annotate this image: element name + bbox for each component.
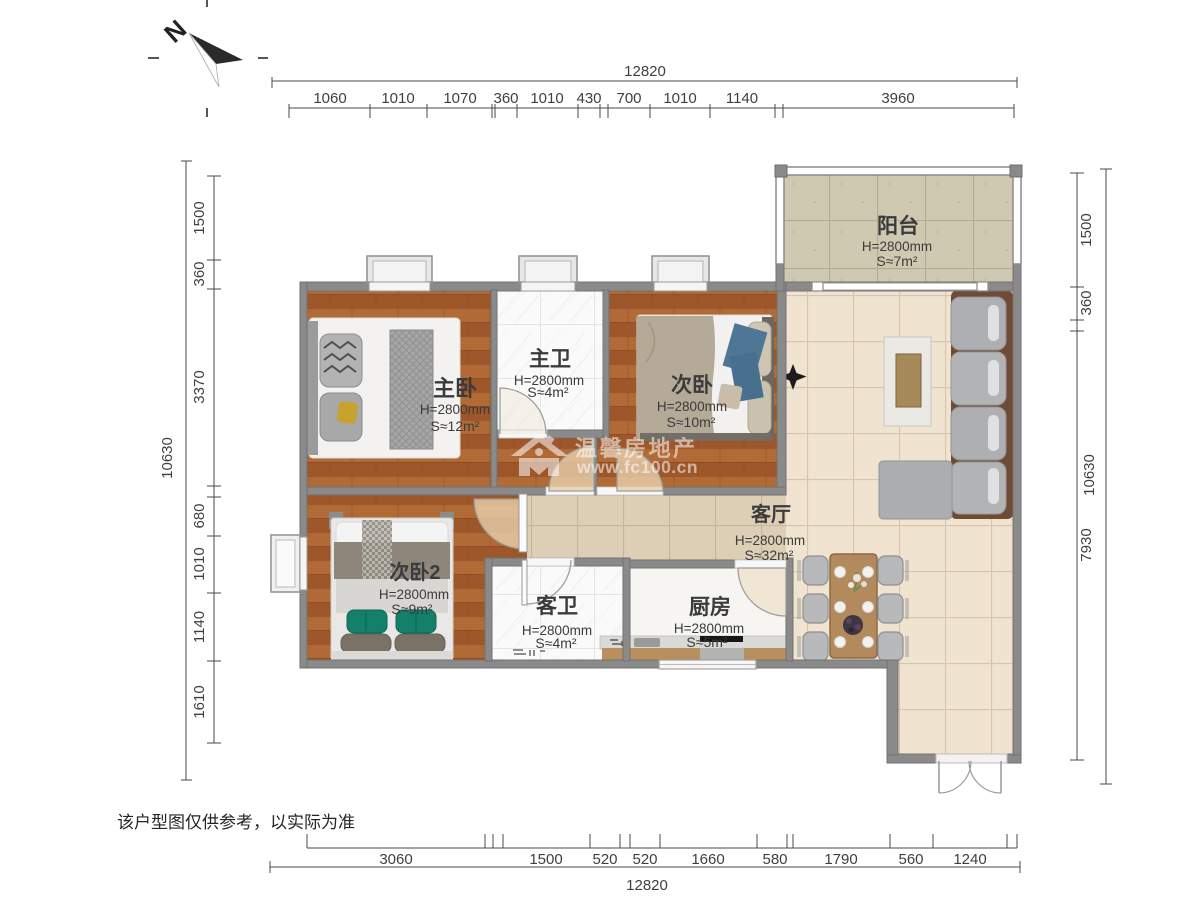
svg-text:360: 360 (1078, 290, 1095, 315)
svg-text:12820: 12820 (626, 877, 668, 894)
svg-text:1060: 1060 (313, 90, 346, 107)
svg-text:1660: 1660 (691, 851, 724, 868)
svg-text:该户型图仅供参考，以实际为准: 该户型图仅供参考，以实际为准 (117, 813, 355, 832)
svg-text:560: 560 (898, 851, 923, 868)
svg-text:580: 580 (762, 851, 787, 868)
svg-text:客卫: 客卫 (536, 594, 578, 618)
svg-text:360: 360 (191, 261, 208, 286)
svg-text:H=2800mm: H=2800mm (735, 533, 805, 548)
svg-text:S≈4m²: S≈4m² (527, 384, 568, 400)
svg-text:360: 360 (493, 90, 518, 107)
svg-text:520: 520 (632, 851, 657, 868)
svg-text:S≈5m²: S≈5m² (686, 634, 727, 650)
svg-text:S≈4m²: S≈4m² (535, 635, 576, 651)
svg-text:S≈10m²: S≈10m² (667, 414, 716, 430)
svg-text:1140: 1140 (191, 611, 208, 643)
svg-text:S≈7m²: S≈7m² (876, 253, 917, 269)
svg-text:S≈9m²: S≈9m² (391, 601, 432, 617)
svg-text:主卫: 主卫 (529, 348, 571, 371)
svg-text:主卧: 主卧 (433, 376, 477, 401)
svg-text:S≈12m²: S≈12m² (431, 418, 480, 434)
svg-text:1240: 1240 (953, 851, 986, 868)
svg-text:1010: 1010 (530, 90, 563, 107)
svg-text:H=2800mm: H=2800mm (379, 587, 449, 602)
svg-text:客厅: 客厅 (750, 502, 791, 526)
svg-text:7930: 7930 (1078, 528, 1095, 561)
svg-text:1500: 1500 (191, 201, 208, 234)
svg-text:厨房: 厨房 (689, 595, 731, 619)
svg-text:阳台: 阳台 (877, 214, 919, 238)
svg-text:680: 680 (191, 503, 208, 528)
svg-text:1790: 1790 (824, 851, 857, 868)
svg-text:12820: 12820 (624, 63, 666, 80)
svg-text:H=2800mm: H=2800mm (420, 402, 490, 417)
svg-text:1010: 1010 (381, 90, 414, 107)
svg-text:1500: 1500 (529, 851, 562, 868)
svg-text:H=2800mm: H=2800mm (862, 239, 932, 254)
svg-text:1500: 1500 (1078, 213, 1095, 246)
svg-text:1010: 1010 (191, 547, 208, 580)
svg-text:1140: 1140 (726, 90, 758, 107)
svg-text:10630: 10630 (159, 437, 176, 479)
svg-text:700: 700 (616, 90, 641, 107)
svg-text:1070: 1070 (443, 90, 476, 107)
svg-text:次卧: 次卧 (671, 373, 713, 397)
svg-text:www.fc100.cn: www.fc100.cn (576, 457, 698, 477)
svg-text:1610: 1610 (191, 685, 208, 718)
svg-text:520: 520 (592, 851, 617, 868)
svg-text:S≈32m²: S≈32m² (745, 547, 794, 563)
svg-text:3060: 3060 (379, 851, 412, 868)
svg-text:10630: 10630 (1081, 454, 1098, 496)
svg-text:1010: 1010 (663, 90, 696, 107)
svg-text:次卧2: 次卧2 (389, 560, 440, 584)
svg-text:3960: 3960 (881, 90, 914, 107)
svg-text:H=2800mm: H=2800mm (657, 399, 727, 414)
svg-text:3370: 3370 (191, 370, 208, 403)
svg-text:430: 430 (576, 90, 601, 107)
